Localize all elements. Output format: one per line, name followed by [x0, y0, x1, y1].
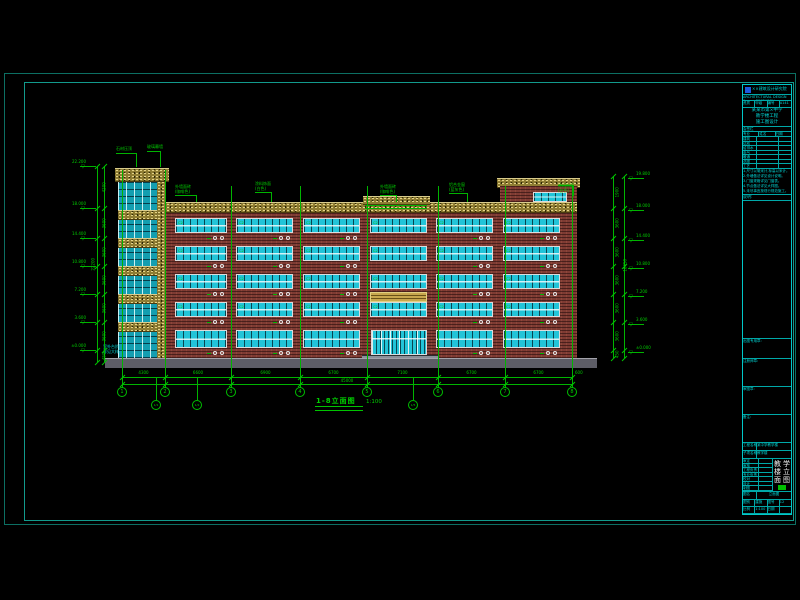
window	[236, 246, 293, 261]
material-annotation: 外墙面砖(咖啡色)	[380, 185, 396, 194]
vent-circle	[220, 292, 224, 296]
stamp-box: 注册师章:	[743, 359, 791, 387]
sign-date	[779, 146, 791, 150]
tb-item-value	[759, 477, 772, 481]
left-dim-text: 3600	[103, 299, 108, 317]
window	[503, 274, 560, 289]
tb-value: 立面图	[757, 492, 791, 499]
vent-mark	[340, 322, 344, 323]
vent-mark	[273, 322, 277, 323]
tower-spandrel-band	[118, 238, 157, 248]
vent-mark	[540, 238, 544, 239]
vent-circle	[213, 320, 217, 324]
vent-mark	[273, 266, 277, 267]
sign-name	[757, 160, 779, 164]
level-triangle-icon: ▽	[81, 349, 85, 354]
sign-date	[779, 164, 791, 168]
level-triangle-icon: ▽	[81, 207, 85, 212]
sign-name	[757, 151, 779, 155]
left-dim-text: 450	[103, 347, 108, 365]
annotation-underline	[175, 195, 197, 196]
annotation-underline	[380, 195, 397, 196]
grid-line	[300, 186, 301, 388]
window	[370, 246, 427, 261]
vent-mark	[273, 353, 277, 354]
tb-label: 工程名称	[743, 443, 757, 450]
sign-discipline: 总图	[743, 160, 757, 164]
vent-circle	[553, 292, 557, 296]
window	[303, 330, 360, 348]
window	[303, 218, 360, 233]
annotation-leader	[136, 154, 137, 167]
elevation-title-underline	[315, 406, 363, 411]
vent-circle	[279, 320, 283, 324]
window-tag: C2	[178, 221, 183, 225]
drawing-title-char: 教	[773, 460, 782, 468]
annotation-underline	[449, 193, 468, 194]
vent-mark	[207, 353, 211, 354]
drawing-title-char: 楼	[773, 468, 782, 476]
vent-mark	[340, 266, 344, 267]
vent-circle	[486, 292, 490, 296]
tb-drawing-title-col: 教学楼立面图	[772, 459, 791, 491]
level-text: 3.600	[636, 318, 647, 323]
drawing-title-char: 立	[782, 468, 791, 476]
vent-mark	[540, 353, 544, 354]
grid-line	[165, 170, 166, 388]
window-tag: C2	[506, 277, 511, 281]
window	[236, 274, 293, 289]
window-tag: C2	[439, 221, 444, 225]
dim-total-text: 45000	[337, 379, 357, 384]
vent-circle	[479, 292, 483, 296]
tb-bottom-row: 图别建施图号12	[743, 500, 791, 507]
tb-bottom-cell: 建施	[755, 500, 767, 506]
project-name-block: 某某市第×中学教学楼工程施工图设计	[743, 108, 791, 127]
window-tag: C2	[178, 305, 183, 309]
sign-name	[757, 164, 779, 168]
vent-circle	[213, 264, 217, 268]
tb-bottom-row: 比例1:100日期	[743, 507, 791, 514]
level-text: 18.000	[636, 204, 650, 209]
tb-bottom-cell: 1:100	[755, 507, 767, 513]
level-triangle-icon: ▽	[81, 265, 85, 270]
sign-discipline: 结构	[743, 142, 757, 146]
window	[436, 218, 493, 233]
drawing-title-char: 学	[782, 460, 791, 468]
certificate-cell: 编号	[768, 101, 780, 107]
grid-line	[122, 170, 123, 388]
window-tag: C2	[506, 221, 511, 225]
vent-circle	[346, 236, 350, 240]
sub-grid-leader	[413, 377, 414, 400]
window-tag: C2	[239, 277, 244, 281]
tb-item-label: 审核	[743, 464, 759, 468]
certificate-cell: A141	[780, 101, 791, 107]
company-name: ××建筑设计研究院	[752, 87, 787, 92]
level-text: 7.200	[636, 290, 647, 295]
vent-circle	[346, 292, 350, 296]
level-triangle-icon: ▽	[629, 351, 633, 356]
level-triangle-icon: ▽	[629, 209, 633, 214]
window-tag: C2	[506, 305, 511, 309]
tb-project-row: 工程名称某中学教学楼	[743, 443, 791, 451]
vent-circle	[286, 292, 290, 296]
vent-circle	[479, 264, 483, 268]
vent-circle	[213, 292, 217, 296]
vent-circle	[220, 236, 224, 240]
window	[236, 302, 293, 317]
vent-mark	[207, 266, 211, 267]
sign-header-cell: 日期	[776, 132, 791, 136]
entrance-glass-doors	[371, 330, 427, 355]
tower-spandrel-band	[118, 266, 157, 276]
annotation-text: 玻璃幕墙	[147, 145, 163, 150]
window	[175, 274, 227, 289]
tb-item-label: 设计	[743, 482, 759, 486]
vent-circle	[486, 236, 490, 240]
level-triangle-icon: ▽	[81, 321, 85, 326]
sign-name	[757, 146, 779, 150]
right-dim-text: 3600	[616, 271, 621, 289]
sign-name	[757, 142, 779, 146]
window-tag: C2	[306, 305, 311, 309]
left-dim-text: 3600	[103, 271, 108, 289]
vent-circle	[486, 351, 490, 355]
annotation-text: (白色)	[255, 187, 271, 192]
left-dim-total: 22200	[92, 254, 97, 274]
tb-value: 某中学教学楼	[757, 443, 791, 450]
sub-grid-bubble: 1/1	[151, 400, 161, 410]
ground-line-band	[105, 358, 597, 368]
vent-circle	[553, 351, 557, 355]
vent-circle	[286, 236, 290, 240]
dim-text: 7100	[393, 371, 413, 376]
window-tag: C2	[239, 221, 244, 225]
window-tag: C2	[373, 305, 378, 309]
window-tag: C2	[439, 277, 444, 281]
grid-line	[367, 186, 368, 388]
right-dim-text: 450	[616, 345, 621, 363]
vent-circle	[279, 292, 283, 296]
level-triangle-icon: ▽	[629, 323, 633, 328]
annotation-underline	[147, 151, 161, 152]
vent-circle	[286, 264, 290, 268]
grid-bubble: 3	[226, 387, 236, 397]
right-dim-text: 3600	[616, 243, 621, 261]
window-tag: C2	[239, 305, 244, 309]
vent-circle	[353, 236, 357, 240]
window	[370, 218, 427, 233]
tower-spandrel-band	[118, 322, 157, 332]
right-dim-text: 3600	[616, 327, 621, 345]
vent-mark	[273, 238, 277, 239]
sign-discipline: 工艺	[743, 164, 757, 168]
roof-railing-line-1	[365, 205, 427, 206]
annotation-leader	[573, 186, 574, 196]
tb-item-value	[759, 482, 772, 486]
window	[175, 330, 227, 348]
left-dim-text: 3600	[103, 327, 108, 345]
level-triangle-icon: ▽	[629, 295, 633, 300]
vent-mark	[273, 294, 277, 295]
annotation-text: (咖啡色)	[175, 190, 191, 195]
grid-bubble: 4	[295, 387, 305, 397]
green-stamp	[778, 485, 786, 490]
level-text: 14.400	[636, 234, 650, 239]
dim-text: 6700	[529, 371, 549, 376]
tb-bottom-cell: 12	[780, 500, 791, 506]
vent-circle	[220, 351, 224, 355]
tb-bottom-cell: 图别	[743, 500, 755, 506]
material-annotation: 铝合金窗(蓝灰色)	[449, 183, 465, 192]
vent-circle	[479, 236, 483, 240]
tb-bottom-cell: 日期	[768, 507, 780, 513]
cad-sheet: 1-8立面图 1:100 室外台阶 详见大样 ××建筑设计研究院 ARCHITE…	[0, 0, 800, 600]
company-logo-icon	[745, 87, 751, 93]
tb-item-value	[759, 464, 772, 468]
window-tag: C2	[306, 277, 311, 281]
level-triangle-icon: ▽	[81, 237, 85, 242]
annotation-leader	[271, 193, 272, 202]
left-dim-text: 3600	[103, 243, 108, 261]
vent-mark	[473, 294, 477, 295]
sign-discipline: 建筑	[743, 137, 757, 141]
vent-circle	[553, 236, 557, 240]
grid-bubble: 8	[567, 387, 577, 397]
vent-mark	[207, 322, 211, 323]
window	[175, 218, 227, 233]
window-tag: C2	[306, 221, 311, 225]
window	[503, 302, 560, 317]
tb-bottom-cell: 比例	[743, 507, 755, 513]
drawing-title-char: 面	[773, 476, 782, 484]
tb-bottom-cell	[780, 507, 791, 513]
level-triangle-icon: ▽	[629, 177, 633, 182]
vent-circle	[546, 236, 550, 240]
stamp-box: 备注:	[743, 415, 791, 443]
vent-mark	[207, 294, 211, 295]
vent-circle	[279, 236, 283, 240]
level-triangle-icon: ▽	[81, 293, 85, 298]
notes-block: 1.尺寸以毫米计,标高以米计。2.外墙做法详见设计说明。3.门窗规格详见门窗表。…	[743, 169, 791, 195]
level-text: ±0.000	[636, 346, 651, 351]
dim-text: 6700	[462, 371, 482, 376]
sign-discipline: 电气	[743, 151, 757, 155]
grid-line	[231, 186, 232, 388]
window-tag: C2	[373, 277, 378, 281]
vent-circle	[553, 264, 557, 268]
window	[503, 330, 560, 348]
tb-item-label: 工程负责	[743, 468, 759, 472]
vent-circle	[279, 351, 283, 355]
sign-date	[779, 160, 791, 164]
stamp-box: 出图专用章:	[743, 339, 791, 359]
certificate-row: 资质甲级编号A141	[743, 101, 791, 108]
level-triangle-icon: ▽	[629, 267, 633, 272]
dim-text: 6900	[256, 371, 276, 376]
stair-tower-cap	[115, 168, 169, 182]
title-block-logo-row: ××建筑设计研究院	[743, 85, 791, 95]
grid-line	[572, 186, 573, 388]
annotation-underline	[558, 185, 574, 186]
window	[436, 330, 493, 348]
left-dim-text: 3600	[103, 214, 108, 232]
annotation-text: (咖啡色)	[380, 190, 396, 195]
elevation-title: 1-8立面图	[316, 396, 356, 406]
grid-bubble: 6	[433, 387, 443, 397]
vent-circle	[353, 320, 357, 324]
vent-circle	[546, 264, 550, 268]
window-tag: C2	[439, 305, 444, 309]
tb-item-label: 校对	[743, 477, 759, 481]
vent-circle	[286, 320, 290, 324]
annotation-text: (蓝灰色)	[449, 188, 465, 193]
vent-circle	[279, 264, 283, 268]
vent-circle	[486, 264, 490, 268]
grid-bubble: 7	[500, 387, 510, 397]
window-tag: C2	[178, 249, 183, 253]
right-dim-text: 3600	[616, 299, 621, 317]
tb-item-row: 制图	[743, 486, 772, 491]
window	[503, 218, 560, 233]
elevation-scale: 1:100	[366, 399, 382, 405]
window-tag: C2	[506, 249, 511, 253]
vent-circle	[353, 292, 357, 296]
vent-circle	[213, 351, 217, 355]
sign-date	[779, 151, 791, 155]
window	[175, 302, 227, 317]
vent-circle	[213, 236, 217, 240]
window	[436, 246, 493, 261]
level-triangle-icon: ▽	[81, 165, 85, 170]
window-tag: C2	[373, 221, 378, 225]
annotation-underline	[255, 192, 272, 193]
window	[236, 330, 293, 348]
vent-mark	[340, 294, 344, 295]
vent-mark	[473, 353, 477, 354]
tb-project-row: 子项名称教学楼	[743, 451, 791, 459]
vent-mark	[473, 322, 477, 323]
level-triangle-icon: ▽	[629, 239, 633, 244]
sub-grid-bubble: 1/5	[408, 400, 418, 410]
vent-mark	[340, 238, 344, 239]
roof-railing-line-2	[365, 208, 427, 209]
material-annotation: 外墙面砖(咖啡色)	[175, 185, 191, 194]
vent-circle	[353, 351, 357, 355]
vent-circle	[479, 351, 483, 355]
vent-circle	[546, 320, 550, 324]
vent-circle	[220, 264, 224, 268]
material-annotation: 涂料饰面(白色)	[255, 182, 271, 191]
window	[503, 246, 560, 261]
vent-circle	[553, 320, 557, 324]
sign-header-cell: 专业	[743, 132, 759, 136]
vent-mark	[473, 266, 477, 267]
stamp-boxes: 出图专用章:注册师章:审图章:备注:	[743, 339, 791, 443]
project-line: 施工图设计	[743, 120, 791, 126]
tower-spandrel-band	[118, 294, 157, 304]
note-line: 1.尺寸以毫米计,标高以米计。	[743, 169, 791, 174]
annotation-underline	[116, 153, 137, 154]
tb-item-value	[759, 486, 772, 490]
grid-bubble: 2	[160, 387, 170, 397]
sign-date	[779, 137, 791, 141]
level-text: 10.800	[636, 262, 650, 267]
vent-mark	[540, 294, 544, 295]
window-tag: C2	[178, 277, 183, 281]
sign-date	[779, 142, 791, 146]
vent-circle	[220, 320, 224, 324]
window-tag: C2	[239, 249, 244, 253]
window	[370, 274, 427, 289]
window-tag: C2	[373, 249, 378, 253]
annotation-leader	[160, 152, 161, 167]
sign-discipline: 给排水	[743, 146, 757, 150]
annotation-leader	[196, 196, 197, 202]
dim-text: 6700	[324, 371, 344, 376]
window-tag: C2	[439, 249, 444, 253]
vent-mark	[473, 238, 477, 239]
tb-label: 子项名称	[743, 451, 757, 458]
vent-mark	[540, 266, 544, 267]
tb-item-value	[759, 473, 772, 477]
window	[370, 302, 427, 317]
annotation-text: (白色)	[558, 189, 574, 194]
stamp-box: 审图章:	[743, 387, 791, 415]
certificate-cell: 资质	[743, 101, 755, 107]
level-text: 19.800	[636, 172, 650, 177]
vent-circle	[286, 351, 290, 355]
window-tag: C2	[306, 249, 311, 253]
tb-item-label: 审定	[743, 459, 759, 463]
note-line: 2.外墙做法详见设计说明。	[743, 174, 791, 179]
vent-circle	[546, 351, 550, 355]
vent-circle	[353, 264, 357, 268]
certificate-cell: 甲级	[755, 101, 767, 107]
tower-spandrel-band	[118, 210, 157, 220]
sign-name	[757, 137, 779, 141]
sign-discipline: 暖通	[743, 155, 757, 159]
sub-grid-bubble: 1/2	[192, 400, 202, 410]
left-dim-text: 4200	[103, 178, 108, 196]
tb-value: 教学楼	[757, 451, 791, 458]
tb-drawing-name-row: 图名立面图	[743, 492, 791, 500]
tb-label: 图名	[743, 492, 757, 499]
grid-bubble: 1	[117, 387, 127, 397]
annotation-leader	[396, 196, 397, 202]
title-block-blank-area	[743, 201, 791, 340]
window	[175, 246, 227, 261]
title-block: ××建筑设计研究院 ARCHITECTURAL DESIGN &amp; RES…	[742, 84, 792, 515]
drawing-title-char: 图	[782, 476, 791, 484]
grid-bubble: 5	[362, 387, 372, 397]
tb-item-value	[759, 459, 772, 463]
dim-extra-text: 600	[575, 371, 583, 376]
grid-line	[438, 186, 439, 388]
right-dim-total: 18450	[624, 255, 629, 275]
vent-circle	[546, 292, 550, 296]
sign-header-cell: 姓名	[759, 132, 775, 136]
window	[436, 274, 493, 289]
sign-date	[779, 155, 791, 159]
window	[236, 218, 293, 233]
window	[303, 246, 360, 261]
entrance-canopy-louver	[370, 292, 427, 302]
dim-text: 6600	[188, 371, 208, 376]
note-line: 5.未尽事宜按现行规范施工。	[743, 189, 791, 194]
vent-circle	[486, 320, 490, 324]
